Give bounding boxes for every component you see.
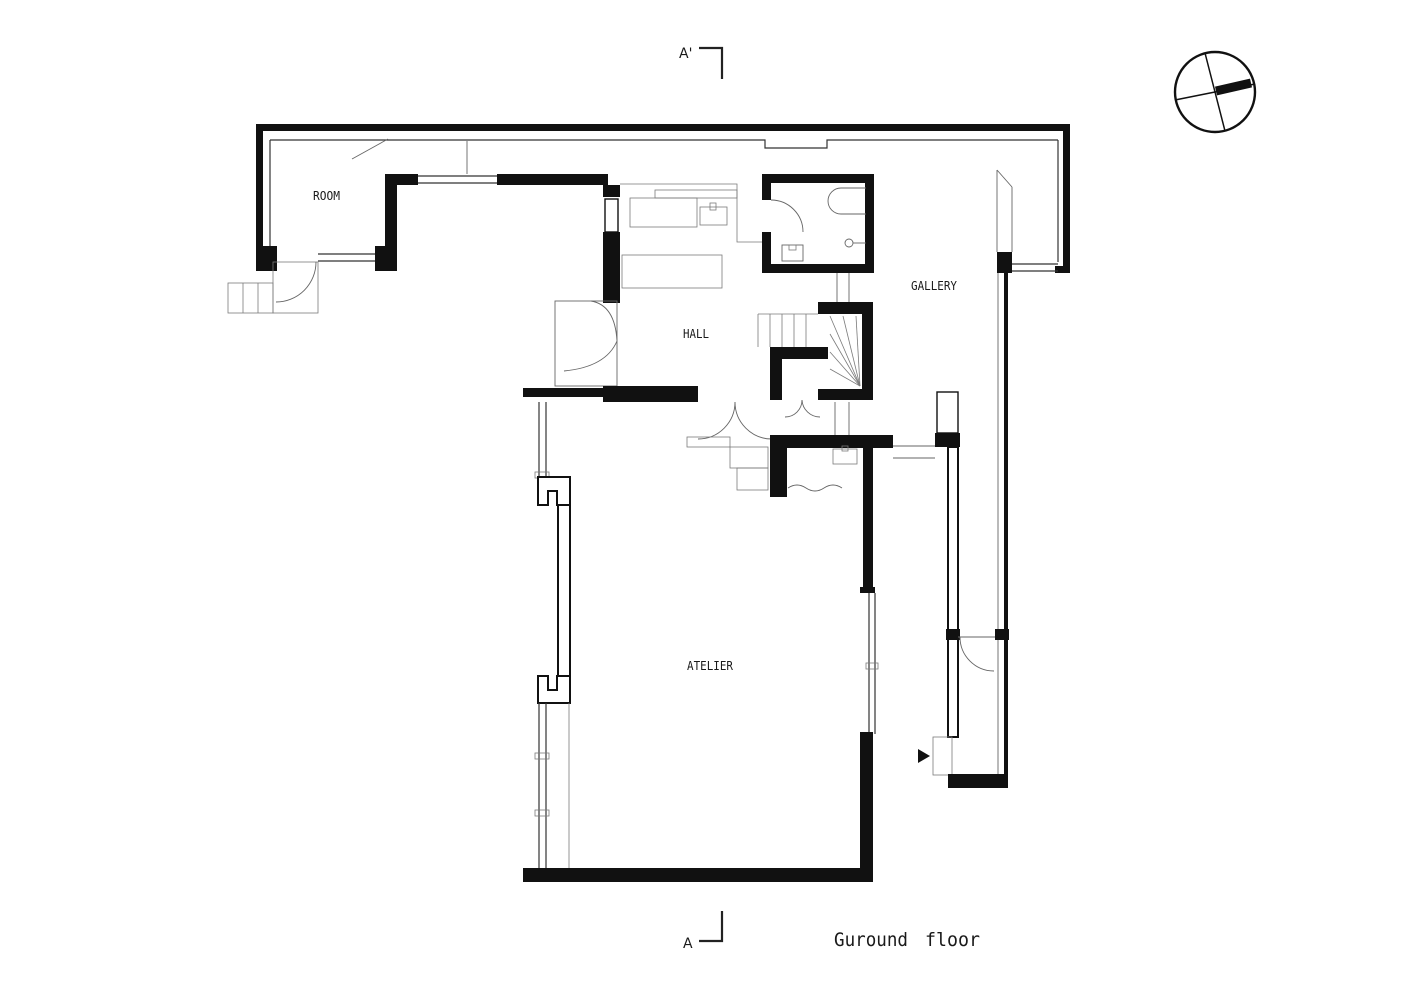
section-marker-top-label: A' bbox=[679, 46, 692, 62]
porch-steps bbox=[228, 262, 318, 313]
entrance-arrow-icon bbox=[918, 749, 930, 763]
room-area bbox=[256, 139, 608, 271]
floor-plan-page: ROOM HALL GALLERY ATELIER A' A Guround f… bbox=[0, 0, 1415, 1000]
stairs bbox=[758, 302, 873, 417]
wc-area bbox=[770, 435, 893, 593]
drawing-title-word2: floor bbox=[925, 929, 980, 951]
entrance bbox=[918, 737, 1008, 788]
section-marker-bottom: A bbox=[683, 911, 722, 952]
atelier-label: ATELIER bbox=[687, 658, 733, 673]
room-label: ROOM bbox=[313, 188, 340, 203]
north-arrow-icon bbox=[1175, 52, 1255, 132]
kitchen-area bbox=[603, 184, 763, 303]
bathroom-area bbox=[762, 174, 874, 302]
atelier-area bbox=[523, 402, 878, 882]
hall-label: HALL bbox=[683, 326, 709, 341]
gallery-area bbox=[893, 170, 1058, 788]
gallery-label: GALLERY bbox=[911, 278, 957, 293]
floor-plan-canvas: ROOM HALL GALLERY ATELIER A' A Guround f… bbox=[0, 0, 1415, 1000]
drawing-title: Guround floor bbox=[834, 929, 980, 951]
section-marker-top: A' bbox=[679, 46, 722, 79]
section-marker-bottom-label: A bbox=[683, 936, 693, 952]
drawing-title-word1: Guround bbox=[834, 929, 908, 951]
